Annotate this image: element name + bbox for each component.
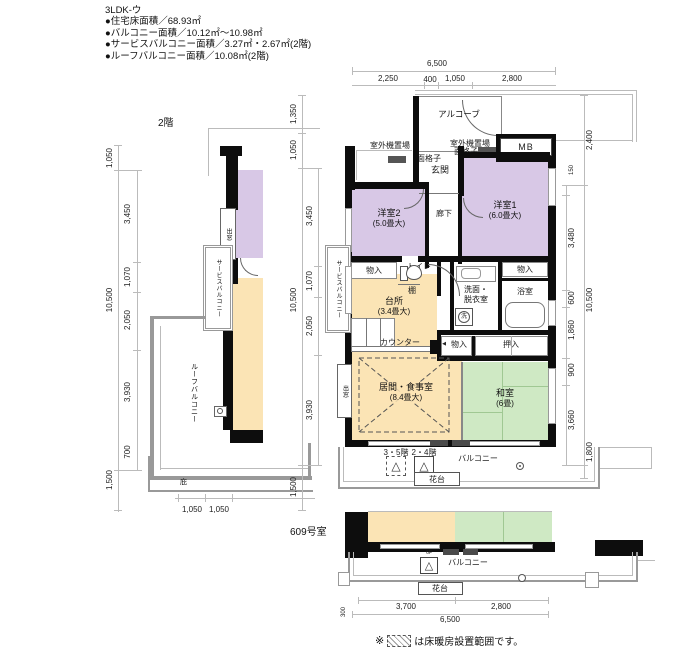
railing-line — [415, 94, 633, 95]
dim: 1,350 — [290, 104, 298, 124]
roof-balcony-frame — [150, 316, 154, 480]
entrance-label: 玄関 — [431, 166, 449, 175]
wall — [458, 196, 462, 264]
railing-line — [600, 468, 652, 469]
shelf-label: 棚 — [408, 287, 416, 295]
washroom-label: 洗面・ 脱衣室 — [464, 285, 488, 305]
niche-line — [356, 150, 412, 151]
dim-tick — [114, 470, 142, 471]
hatch-glyph: △ — [391, 459, 400, 473]
door-arc — [240, 258, 258, 276]
dim-tick — [562, 465, 588, 466]
western1-label: 洋室1 (6.0畳大) — [489, 200, 521, 221]
dim-line — [302, 95, 303, 510]
living-label: 居間・食事室 (8.4畳大) — [377, 382, 435, 403]
wall — [230, 430, 263, 443]
header-line: ●サービスバルコニー面積／3.27㎡・2.67㎡(2階) — [105, 39, 311, 50]
dim-line — [584, 95, 585, 478]
window — [548, 168, 556, 206]
dim: 2,400 — [586, 130, 594, 150]
dim-tick — [114, 170, 142, 171]
dim: 1,500 — [106, 470, 114, 490]
corridor-label: 廊下 — [436, 210, 452, 218]
eaves-line — [148, 456, 150, 492]
dim: 1,050 — [182, 506, 202, 514]
arrow-icon: ◀ — [442, 342, 446, 347]
flower-stand-label: 花台 — [432, 585, 448, 593]
balcony-pillar — [338, 572, 350, 586]
floorplan-page: 3LDK-ウ ●住宅床面積／68.93㎡ ●バルコニー面積／10.12㎡〜10.… — [0, 0, 700, 650]
dim-tick — [438, 82, 439, 89]
dim: 3,450 — [306, 206, 314, 226]
drain-icon — [518, 574, 526, 582]
escape-hatch-35: △ — [386, 456, 406, 476]
window — [548, 300, 556, 326]
dim-line — [118, 145, 119, 512]
service-balcony-door — [345, 266, 352, 314]
japanese-label: 和室 (6畳) — [496, 388, 514, 409]
dim: 1,050 — [209, 506, 229, 514]
storage-label: 物入 — [366, 267, 382, 275]
wall — [345, 182, 429, 189]
japanese-size: (6畳) — [496, 399, 514, 409]
note-text: は床暖房設置範囲です。 — [414, 633, 523, 648]
dim: 600 — [568, 291, 576, 304]
wall — [430, 340, 438, 354]
western1-name: 洋室1 — [489, 200, 521, 211]
dim-tick — [314, 297, 322, 298]
wall — [226, 154, 238, 210]
header-line: ●ルーフバルコニー面積／10.08㎡(2階) — [105, 51, 311, 62]
shelf-line — [398, 284, 420, 285]
oshiire-line — [511, 336, 512, 356]
window — [380, 544, 440, 549]
dim-tick — [562, 307, 570, 308]
dim-tick — [114, 510, 122, 511]
dim: 1,070 — [306, 271, 314, 291]
railing-line — [632, 94, 633, 142]
cut-line — [368, 511, 552, 512]
western2-size: (5.0畳大) — [373, 219, 405, 229]
balcony-vent — [430, 440, 448, 446]
dim-tick — [314, 266, 322, 267]
floor-heating-swatch — [387, 635, 411, 647]
dim-tick — [133, 292, 141, 293]
balcony-label: バルコニー — [458, 455, 498, 463]
dim: 3,700 — [396, 603, 416, 611]
dim: 1,050 — [106, 148, 114, 168]
hatch-glyph: △ — [419, 459, 428, 473]
service-balcony-label: サービスバルコニー — [335, 260, 341, 319]
washing-machine-mark: 洗 — [461, 314, 467, 320]
service-balcony: サービスバルコニー — [203, 245, 233, 331]
floor2-title: 2階 — [158, 118, 174, 131]
railing-line — [636, 90, 637, 142]
balcony-vent — [452, 440, 470, 446]
dim-tick — [562, 185, 588, 186]
dim: 10,500 — [290, 288, 298, 312]
dim-line — [358, 600, 548, 601]
dim: 400 — [423, 76, 436, 84]
dim-tick — [580, 95, 588, 96]
dim: 10,500 — [586, 288, 594, 312]
wall — [413, 96, 419, 188]
washroom-line2: 脱衣室 — [464, 295, 488, 305]
tatami-line — [502, 386, 548, 387]
wall — [458, 152, 550, 158]
roof-balcony-label-wrap: ルーフバルコニー — [185, 348, 203, 438]
dim-tick — [580, 478, 588, 479]
dim-tick — [298, 510, 306, 511]
railing-line — [208, 128, 320, 129]
roof-balcony-label: ルーフバルコニー — [191, 363, 198, 423]
dim: 2,800 — [491, 603, 511, 611]
hatch-glyph: △ — [425, 559, 433, 572]
drain-icon — [217, 408, 223, 414]
dim: 1,050 — [445, 75, 465, 83]
plan-title: 3LDK-ウ — [105, 5, 311, 16]
roof-balcony-frame — [150, 476, 312, 480]
dim-total-bottom: 6,500 — [440, 616, 460, 624]
dim: 2,800 — [502, 75, 522, 83]
dim: 3,930 — [306, 400, 314, 420]
living-size: (8.4畳大) — [379, 393, 433, 403]
bath-label: 浴室 — [517, 288, 533, 296]
footer-note: ※ は床暖房設置範囲です。 — [375, 633, 523, 648]
western1-size: (6.0畳大) — [489, 211, 521, 221]
dim-tick — [358, 597, 359, 604]
dim-tick — [562, 195, 570, 196]
toilet-bowl — [406, 265, 422, 280]
header-line: ●住宅床面積／68.93㎡ — [105, 16, 311, 27]
dim-tick — [472, 82, 473, 89]
railing-line — [600, 447, 652, 448]
dim-tick — [555, 67, 556, 75]
railing-line — [651, 447, 652, 469]
roof-balcony-inner-line — [160, 326, 161, 470]
dim-line — [352, 71, 556, 72]
bay-window-label: 出窓 — [342, 385, 348, 398]
dim: 10,500 — [106, 288, 114, 312]
eaves-label: 庇 — [180, 479, 187, 488]
dim-tick — [298, 465, 322, 466]
floor2-kitchen-living-strip — [233, 278, 263, 430]
wall — [437, 330, 556, 335]
dim-tick — [205, 494, 206, 502]
dim-tick — [562, 358, 570, 359]
western2-name: 洋室2 — [373, 208, 405, 219]
dim-tick — [133, 262, 141, 263]
dim-tick — [455, 597, 456, 604]
roof-balcony-frame — [308, 443, 311, 480]
dim: 3,450 — [124, 204, 132, 224]
dim: 700 — [124, 445, 132, 458]
bay-window: 出窓 — [337, 364, 352, 418]
balcony-inner-rail — [343, 447, 595, 482]
window — [548, 368, 556, 424]
western2-label: 洋室2 (5.0畳大) — [373, 208, 405, 229]
dim: 3,930 — [124, 382, 132, 402]
dim-line — [352, 85, 556, 86]
dim-tick — [114, 145, 122, 146]
dim: 3,480 — [568, 228, 576, 248]
dim: 2,050 — [124, 310, 132, 330]
balcony-pillar — [585, 572, 599, 588]
dim-tick — [133, 350, 141, 351]
window — [468, 441, 540, 446]
service-balcony-label: サービスバルコニー — [215, 259, 221, 318]
floor6-label: 6F — [426, 551, 432, 556]
roof-balcony-frame — [150, 316, 205, 319]
storage-label: 物入 — [451, 341, 467, 349]
roof-balcony-inner-line — [160, 468, 308, 469]
bathtub — [505, 302, 545, 328]
dim-tick — [352, 67, 353, 75]
dim-total-top: 6,500 — [427, 60, 447, 68]
meter-box-label: MB — [518, 143, 534, 152]
dim: 1,800 — [586, 442, 594, 462]
dim: 150 — [569, 165, 575, 175]
alcove-label: アルコーブ — [438, 110, 480, 119]
railing-line — [415, 90, 637, 91]
dim-tick — [178, 494, 179, 502]
dim-tick — [314, 355, 322, 356]
dim: 900 — [568, 363, 576, 376]
dim-tick — [352, 611, 353, 618]
dim: 1,500 — [290, 477, 298, 497]
lattice-grille — [388, 156, 406, 163]
counter-bar — [351, 346, 437, 352]
dim-line — [318, 168, 319, 465]
japanese-name: 和室 — [496, 388, 514, 399]
dim: 2,250 — [378, 75, 398, 83]
wall — [437, 356, 556, 361]
railing-line — [556, 140, 632, 141]
dim: 1,070 — [124, 267, 132, 287]
washroom-line1: 洗面・ — [464, 285, 488, 295]
dim-line — [175, 498, 315, 499]
dim: 3,660 — [568, 410, 576, 430]
kitchen-name: 台所 — [378, 296, 410, 307]
dim-tick — [548, 597, 549, 604]
kitchen-size: (3.4畳大) — [378, 307, 410, 317]
railing-line — [638, 560, 655, 561]
tatami-line — [462, 412, 502, 413]
sliding-door-line — [461, 362, 463, 440]
header-line: ●バルコニー面積／10.12㎡〜10.98㎡ — [105, 28, 311, 39]
escape-hatch-6f: △ — [420, 557, 438, 574]
room609-wood-strip — [368, 512, 455, 542]
bay-window-label: 出窓 — [225, 228, 231, 241]
lattice-label: 面格子 — [417, 155, 441, 163]
dim: 2,050 — [306, 316, 314, 336]
outdoor-unit-label: 室外機置場 — [370, 142, 410, 150]
dim-tick — [298, 168, 322, 169]
dim-tick — [562, 385, 570, 386]
balcony-vent — [443, 549, 459, 555]
balcony-label: バルコニー — [448, 559, 488, 567]
living-name: 居間・食事室 — [379, 382, 433, 393]
storage-label: 物入 — [517, 266, 533, 274]
header-block: 3LDK-ウ ●住宅床面積／68.93㎡ ●バルコニー面積／10.12㎡〜10.… — [105, 5, 311, 62]
dim-tick — [232, 494, 233, 502]
wall — [502, 278, 548, 281]
dim-tick — [424, 82, 425, 89]
note-prefix: ※ — [375, 634, 384, 647]
drain-dot — [519, 465, 521, 467]
flower-stand-label: 花台 — [429, 476, 445, 484]
dim-tick — [298, 133, 306, 134]
railing-line — [208, 128, 209, 176]
dim: 300 — [341, 607, 347, 617]
room609-title: 609号室 — [290, 527, 327, 540]
floor2-western-room-strip — [235, 170, 263, 258]
dim-tick — [548, 611, 549, 618]
kitchen-label: 台所 (3.4畳大) — [378, 296, 410, 317]
window — [368, 441, 432, 446]
niche-line — [356, 150, 357, 180]
dim-tick — [298, 95, 306, 96]
balcony-vent — [463, 549, 478, 555]
tatami-line — [503, 512, 504, 542]
dim: 1,050 — [290, 140, 298, 160]
dim: 1,860 — [568, 320, 576, 340]
dim-line — [137, 170, 138, 470]
sink-basin — [461, 268, 481, 279]
